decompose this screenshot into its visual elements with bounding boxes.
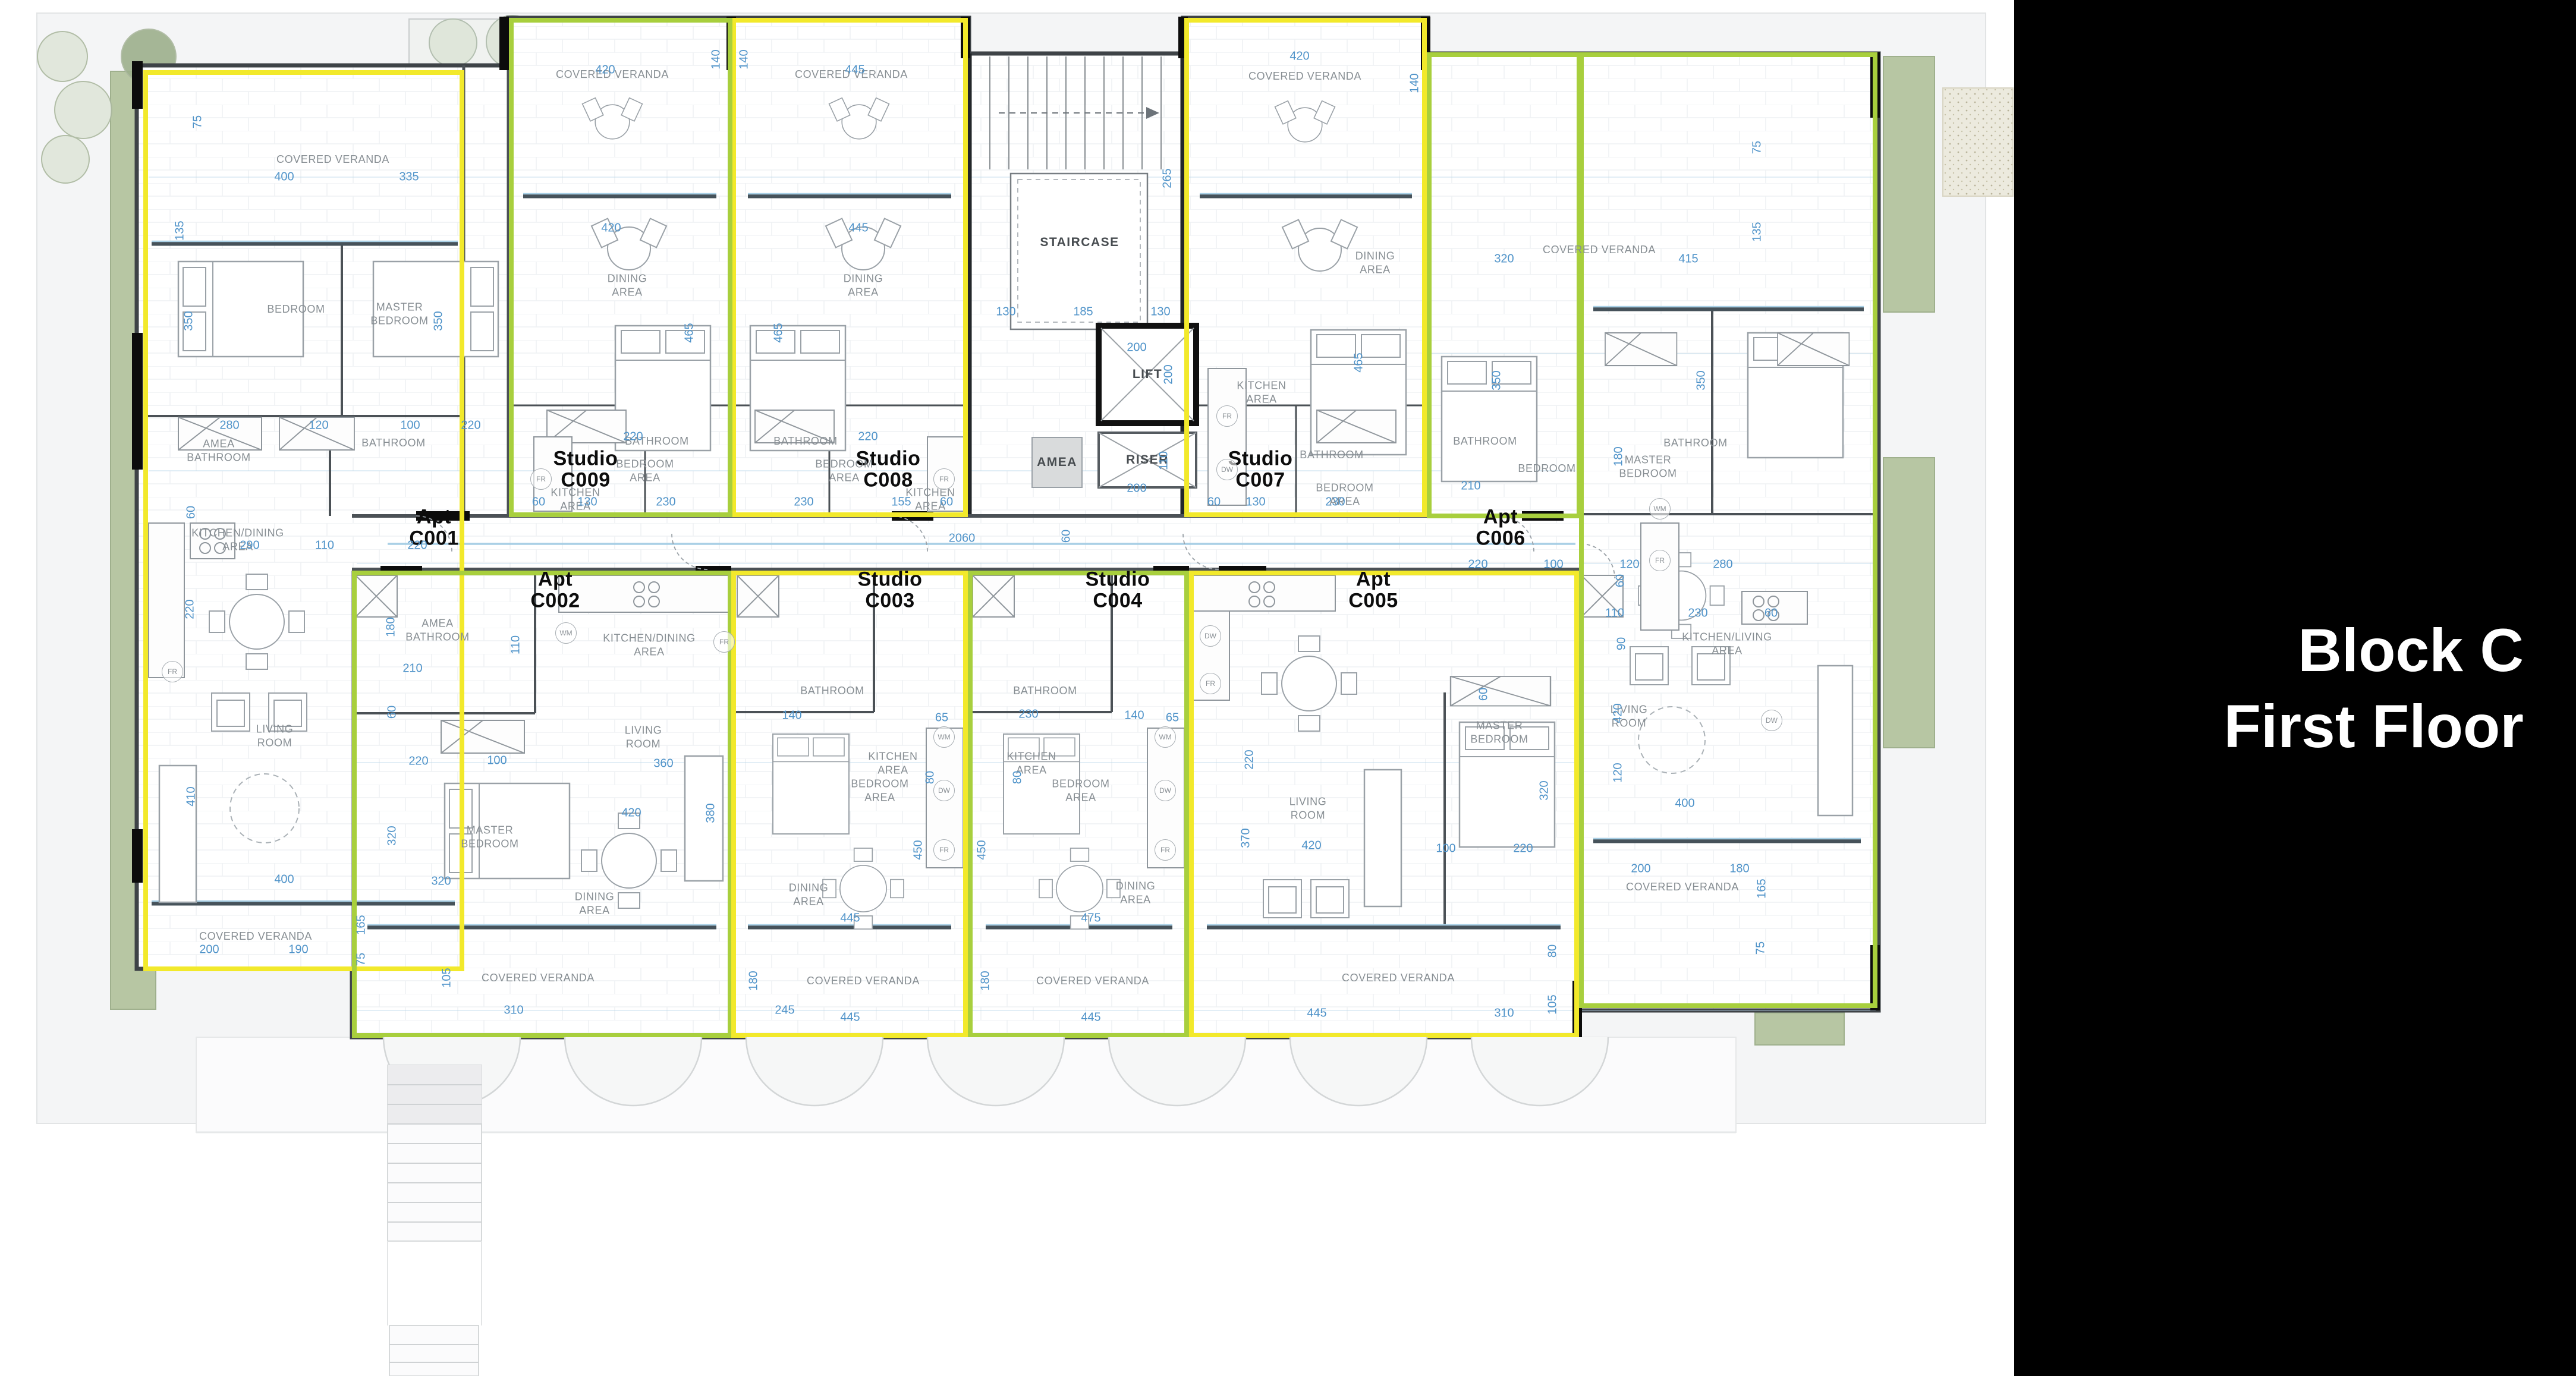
room-label: LIVING ROOM bbox=[625, 724, 662, 751]
dimension-label: 445 bbox=[840, 912, 860, 925]
dimension-label: 180 bbox=[385, 617, 398, 637]
dimension-label: 220 bbox=[1513, 843, 1533, 855]
dimension-label: 60 bbox=[1764, 607, 1778, 620]
appliance-label-fr: FR bbox=[1649, 550, 1671, 571]
dimension-label: 230 bbox=[794, 496, 813, 509]
dimension-label: 190 bbox=[288, 944, 308, 956]
dimension-label: 445 bbox=[1081, 1012, 1100, 1024]
dimension-label: 220 bbox=[461, 420, 480, 432]
title-panel: Block C First Floor bbox=[2014, 0, 2576, 1376]
dimension-label: 90 bbox=[1616, 637, 1628, 650]
dimension-label: 465 bbox=[773, 323, 785, 342]
room-label: DINING AREA bbox=[1355, 250, 1395, 276]
room-label: KITCHEN AREA bbox=[868, 750, 917, 777]
dimension-label: 310 bbox=[504, 1005, 523, 1017]
room-label: COVERED VERANDA bbox=[1342, 971, 1455, 985]
dimension-label: 220 bbox=[1244, 750, 1256, 769]
room-label: KITCHEN/DINING AREA bbox=[191, 527, 284, 553]
dimension-label: 445 bbox=[845, 64, 864, 77]
dimension-label: 420 bbox=[601, 222, 621, 235]
room-label: COVERED VERANDA bbox=[807, 974, 920, 988]
room-label: BEDROOM bbox=[1518, 462, 1575, 476]
dimension-label: 165 bbox=[1756, 879, 1769, 898]
dimension-label: 165 bbox=[356, 915, 368, 934]
dimension-label: 380 bbox=[705, 803, 718, 823]
appliance-label-fr: FR bbox=[933, 468, 955, 490]
dimension-label: 130 bbox=[996, 306, 1015, 319]
core-label: LIFT bbox=[1133, 368, 1162, 381]
room-label: BATHROOM bbox=[1300, 448, 1363, 462]
dimension-label: 220 bbox=[407, 540, 427, 552]
dimension-label: 200 bbox=[1631, 863, 1650, 876]
room-label: AMEA BATHROOM bbox=[187, 437, 250, 464]
dimension-label: 135 bbox=[174, 221, 187, 240]
dimension-label: 445 bbox=[848, 222, 868, 235]
dimension-label: 60 bbox=[940, 496, 953, 509]
dimension-label: 220 bbox=[408, 755, 428, 768]
dimension-label: 445 bbox=[1307, 1007, 1326, 1020]
dimension-label: 200 bbox=[1127, 483, 1146, 495]
dimension-label: 110 bbox=[1158, 451, 1171, 470]
floor-subtitle: First Floor bbox=[2224, 696, 2524, 757]
room-label: DINING AREA bbox=[575, 890, 615, 917]
room-label: COVERED VERANDA bbox=[276, 153, 389, 166]
dimension-label: 420 bbox=[1612, 703, 1625, 723]
dimension-label: 130 bbox=[577, 496, 597, 509]
room-label: BATHROOM bbox=[800, 684, 864, 698]
appliance-label-dw: DW bbox=[1216, 459, 1238, 480]
room-label: COVERED VERANDA bbox=[199, 930, 312, 943]
dimension-label: 60 bbox=[386, 706, 399, 719]
dimension-label: 265 bbox=[1162, 168, 1174, 188]
room-label: BATHROOM bbox=[361, 436, 425, 450]
dimension-label: 220 bbox=[1468, 559, 1487, 571]
dimension-label: 140 bbox=[1124, 710, 1144, 722]
dimension-label: 220 bbox=[623, 431, 643, 443]
room-label: BEDROOM AREA bbox=[1052, 777, 1109, 804]
dimension-label: 75 bbox=[192, 115, 205, 128]
page: Apt C001Apt C002Studio C003Studio C004Ap… bbox=[0, 0, 2576, 1376]
dimension-label: 110 bbox=[1605, 607, 1624, 620]
dimension-label: 120 bbox=[309, 420, 328, 432]
dimension-label: 465 bbox=[1353, 352, 1366, 372]
dimension-label: 220 bbox=[184, 599, 197, 619]
room-label: DINING AREA bbox=[608, 272, 647, 299]
room-label: COVERED VERANDA bbox=[1543, 243, 1656, 257]
room-label: BATHROOM bbox=[773, 434, 837, 448]
dimension-label: 60 bbox=[1615, 574, 1627, 587]
dimension-label: 450 bbox=[913, 840, 925, 859]
dimension-label: 60 bbox=[532, 496, 545, 509]
dimension-label: 155 bbox=[891, 496, 911, 509]
room-label: KITCHEN/LIVING AREA bbox=[1682, 631, 1772, 657]
dimension-label: 415 bbox=[1678, 253, 1698, 266]
dimension-label: 335 bbox=[399, 171, 419, 184]
core-label: STAIRCASE bbox=[1040, 236, 1119, 249]
appliance-label-fr: FR bbox=[530, 468, 552, 490]
unit-label-C004: Studio C004 bbox=[1086, 569, 1150, 611]
appliance-label-wm: WM bbox=[933, 726, 955, 748]
dimension-label: 280 bbox=[219, 420, 239, 432]
dimension-label: 140 bbox=[1409, 73, 1421, 93]
dimension-label: 100 bbox=[400, 420, 420, 432]
dimension-label: 180 bbox=[1729, 863, 1749, 876]
appliance-label-dw: DW bbox=[1761, 710, 1782, 731]
dimension-label: 420 bbox=[621, 807, 641, 820]
dimension-label: 140 bbox=[710, 49, 723, 69]
dimension-label: 140 bbox=[782, 710, 801, 722]
dimension-label: 320 bbox=[386, 826, 399, 845]
room-label: BATHROOM bbox=[1453, 434, 1517, 448]
room-label: COVERED VERANDA bbox=[1626, 880, 1739, 894]
floor-plan: Apt C001Apt C002Studio C003Studio C004Ap… bbox=[0, 0, 2014, 1376]
room-label: COVERED VERANDA bbox=[1036, 974, 1149, 988]
dimension-label: 80 bbox=[1547, 944, 1559, 958]
appliance-label-wm: WM bbox=[1155, 726, 1176, 748]
dimension-label: 2060 bbox=[949, 533, 976, 545]
dimension-label: 400 bbox=[274, 171, 294, 184]
dimension-label: 350 bbox=[1696, 370, 1708, 390]
dimension-label: 75 bbox=[356, 953, 368, 966]
dimension-label: 180 bbox=[980, 971, 992, 990]
dimension-label: 320 bbox=[1539, 780, 1551, 800]
appliance-label-fr: FR bbox=[1155, 839, 1176, 861]
dimension-label: 200 bbox=[199, 944, 219, 956]
appliance-label-fr: FR bbox=[162, 661, 183, 682]
room-label: KITCHEN AREA bbox=[1237, 379, 1286, 406]
core-label: AMEA bbox=[1037, 456, 1077, 469]
unit-label-C006: Apt C006 bbox=[1476, 506, 1525, 549]
dimension-label: 65 bbox=[935, 712, 948, 725]
room-label: LIVING ROOM bbox=[1289, 795, 1327, 822]
room-label: LIVING ROOM bbox=[256, 723, 294, 750]
room-label: BEDROOM AREA bbox=[815, 458, 873, 484]
dimension-label: 130 bbox=[1245, 496, 1265, 509]
appliance-label-dw: DW bbox=[1155, 780, 1176, 801]
dimension-label: 310 bbox=[1494, 1007, 1514, 1020]
room-label: COVERED VERANDA bbox=[1248, 70, 1361, 83]
room-label: BATHROOM bbox=[1013, 684, 1077, 698]
dimension-label: 140 bbox=[738, 49, 751, 69]
dimension-label: 230 bbox=[1688, 607, 1707, 620]
dimension-label: 60 bbox=[185, 506, 198, 519]
dimension-label: 350 bbox=[1491, 370, 1504, 390]
dimension-label: 400 bbox=[274, 874, 294, 886]
appliance-label-dw: DW bbox=[933, 780, 955, 801]
dimension-label: 100 bbox=[1436, 843, 1455, 855]
dimension-label: 80 bbox=[1012, 771, 1024, 784]
dimension-label: 400 bbox=[1675, 798, 1694, 810]
appliance-label-wm: WM bbox=[1649, 498, 1671, 519]
dimension-label: 450 bbox=[976, 840, 989, 859]
dimension-label: 105 bbox=[1547, 994, 1559, 1014]
room-label: COVERED VERANDA bbox=[482, 971, 595, 985]
appliance-label-fr: FR bbox=[933, 839, 955, 861]
dimension-label: 120 bbox=[1612, 763, 1625, 782]
room-label: DINING AREA bbox=[1116, 880, 1156, 906]
dimension-label: 475 bbox=[1081, 912, 1100, 925]
appliance-label-fr: FR bbox=[713, 631, 735, 653]
room-label: DINING AREA bbox=[844, 272, 883, 299]
dimension-label: 75 bbox=[1755, 942, 1767, 955]
appliance-label-fr: FR bbox=[1200, 673, 1221, 694]
dimension-label: 100 bbox=[487, 755, 507, 767]
dimension-label: 60 bbox=[1207, 496, 1221, 509]
dimension-label: 65 bbox=[1166, 712, 1179, 725]
dimension-label: 210 bbox=[402, 663, 422, 675]
appliance-label-wm: WM bbox=[555, 622, 577, 644]
dimension-label: 245 bbox=[775, 1005, 794, 1017]
room-label: MASTER BEDROOM bbox=[461, 824, 518, 851]
dimension-label: 445 bbox=[840, 1012, 860, 1024]
dimension-label: 320 bbox=[1494, 253, 1514, 266]
dimension-label: 180 bbox=[1613, 446, 1625, 466]
unit-label-C009: Studio C009 bbox=[553, 448, 618, 490]
dimension-label: 120 bbox=[1619, 559, 1639, 571]
dimension-label: 420 bbox=[1289, 51, 1309, 63]
dimension-label: 100 bbox=[1543, 559, 1563, 571]
room-label: MASTER BEDROOM bbox=[1619, 454, 1677, 480]
dimension-label: 200 bbox=[1163, 364, 1175, 384]
room-label: BATHROOM bbox=[1663, 436, 1727, 450]
dimension-label: 420 bbox=[595, 64, 615, 77]
dimension-label: 210 bbox=[1461, 480, 1480, 493]
dimension-label: 280 bbox=[1713, 559, 1732, 571]
room-label: BEDROOM bbox=[267, 303, 325, 316]
room-label: KITCHEN/DINING AREA bbox=[603, 632, 695, 659]
dimension-label: 360 bbox=[653, 758, 673, 770]
room-label: AMEA BATHROOM bbox=[405, 617, 469, 644]
unit-label-C005: Apt C005 bbox=[1348, 569, 1398, 611]
plan-labels: Apt C001Apt C002Studio C003Studio C004Ap… bbox=[0, 0, 2014, 1376]
dimension-label: 60 bbox=[1061, 530, 1073, 543]
dimension-label: 370 bbox=[1240, 828, 1253, 848]
room-label: MASTER BEDROOM bbox=[370, 301, 428, 328]
room-label: MASTER BEDROOM bbox=[1470, 719, 1528, 746]
unit-label-C003: Studio C003 bbox=[858, 569, 923, 611]
room-label: DINING AREA bbox=[789, 881, 829, 908]
dimension-label: 80 bbox=[924, 771, 937, 784]
block-title: Block C bbox=[2298, 620, 2524, 681]
dimension-label: 420 bbox=[1301, 840, 1321, 852]
dimension-label: 320 bbox=[431, 876, 451, 888]
appliance-label-fr: FR bbox=[1216, 405, 1238, 427]
dimension-label: 410 bbox=[185, 786, 198, 806]
dimension-label: 60 bbox=[1478, 688, 1490, 701]
dimension-label: 110 bbox=[510, 635, 523, 654]
dimension-label: 290 bbox=[240, 540, 259, 552]
room-label: BEDROOM AREA bbox=[616, 458, 674, 484]
dimension-label: 200 bbox=[1127, 342, 1146, 354]
dimension-label: 105 bbox=[441, 968, 454, 987]
dimension-label: 130 bbox=[1150, 306, 1170, 319]
dimension-label: 180 bbox=[748, 971, 760, 990]
dimension-label: 230 bbox=[1018, 709, 1038, 721]
dimension-label: 110 bbox=[315, 540, 334, 552]
dimension-label: 135 bbox=[1751, 222, 1764, 241]
dimension-label: 465 bbox=[684, 323, 696, 342]
dimension-label: 350 bbox=[433, 311, 445, 330]
dimension-label: 75 bbox=[1751, 141, 1764, 154]
dimension-label: 230 bbox=[1325, 496, 1345, 509]
room-label: BEDROOM AREA bbox=[851, 777, 908, 804]
unit-label-C002: Apt C002 bbox=[530, 569, 580, 611]
dimension-label: 185 bbox=[1073, 306, 1093, 319]
dimension-label: 350 bbox=[183, 311, 196, 330]
dimension-label: 220 bbox=[858, 431, 877, 443]
appliance-label-dw: DW bbox=[1200, 625, 1221, 647]
dimension-label: 230 bbox=[656, 496, 675, 509]
